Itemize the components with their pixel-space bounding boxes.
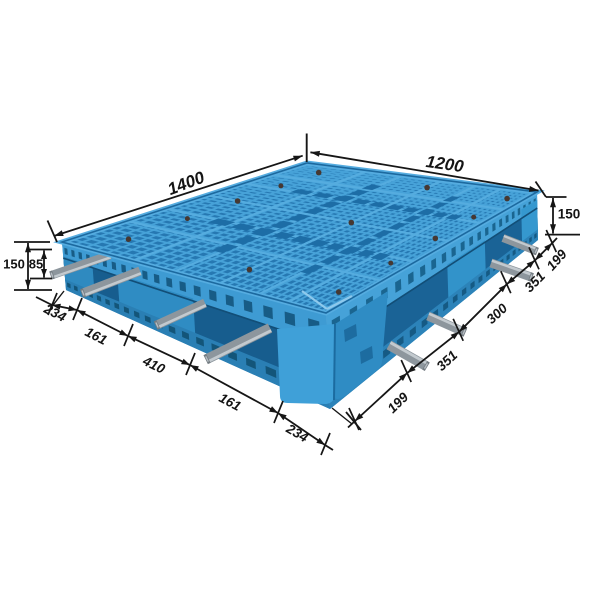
svg-text:150: 150 [3,257,25,272]
svg-text:150: 150 [558,207,581,222]
svg-text:85: 85 [29,257,43,272]
